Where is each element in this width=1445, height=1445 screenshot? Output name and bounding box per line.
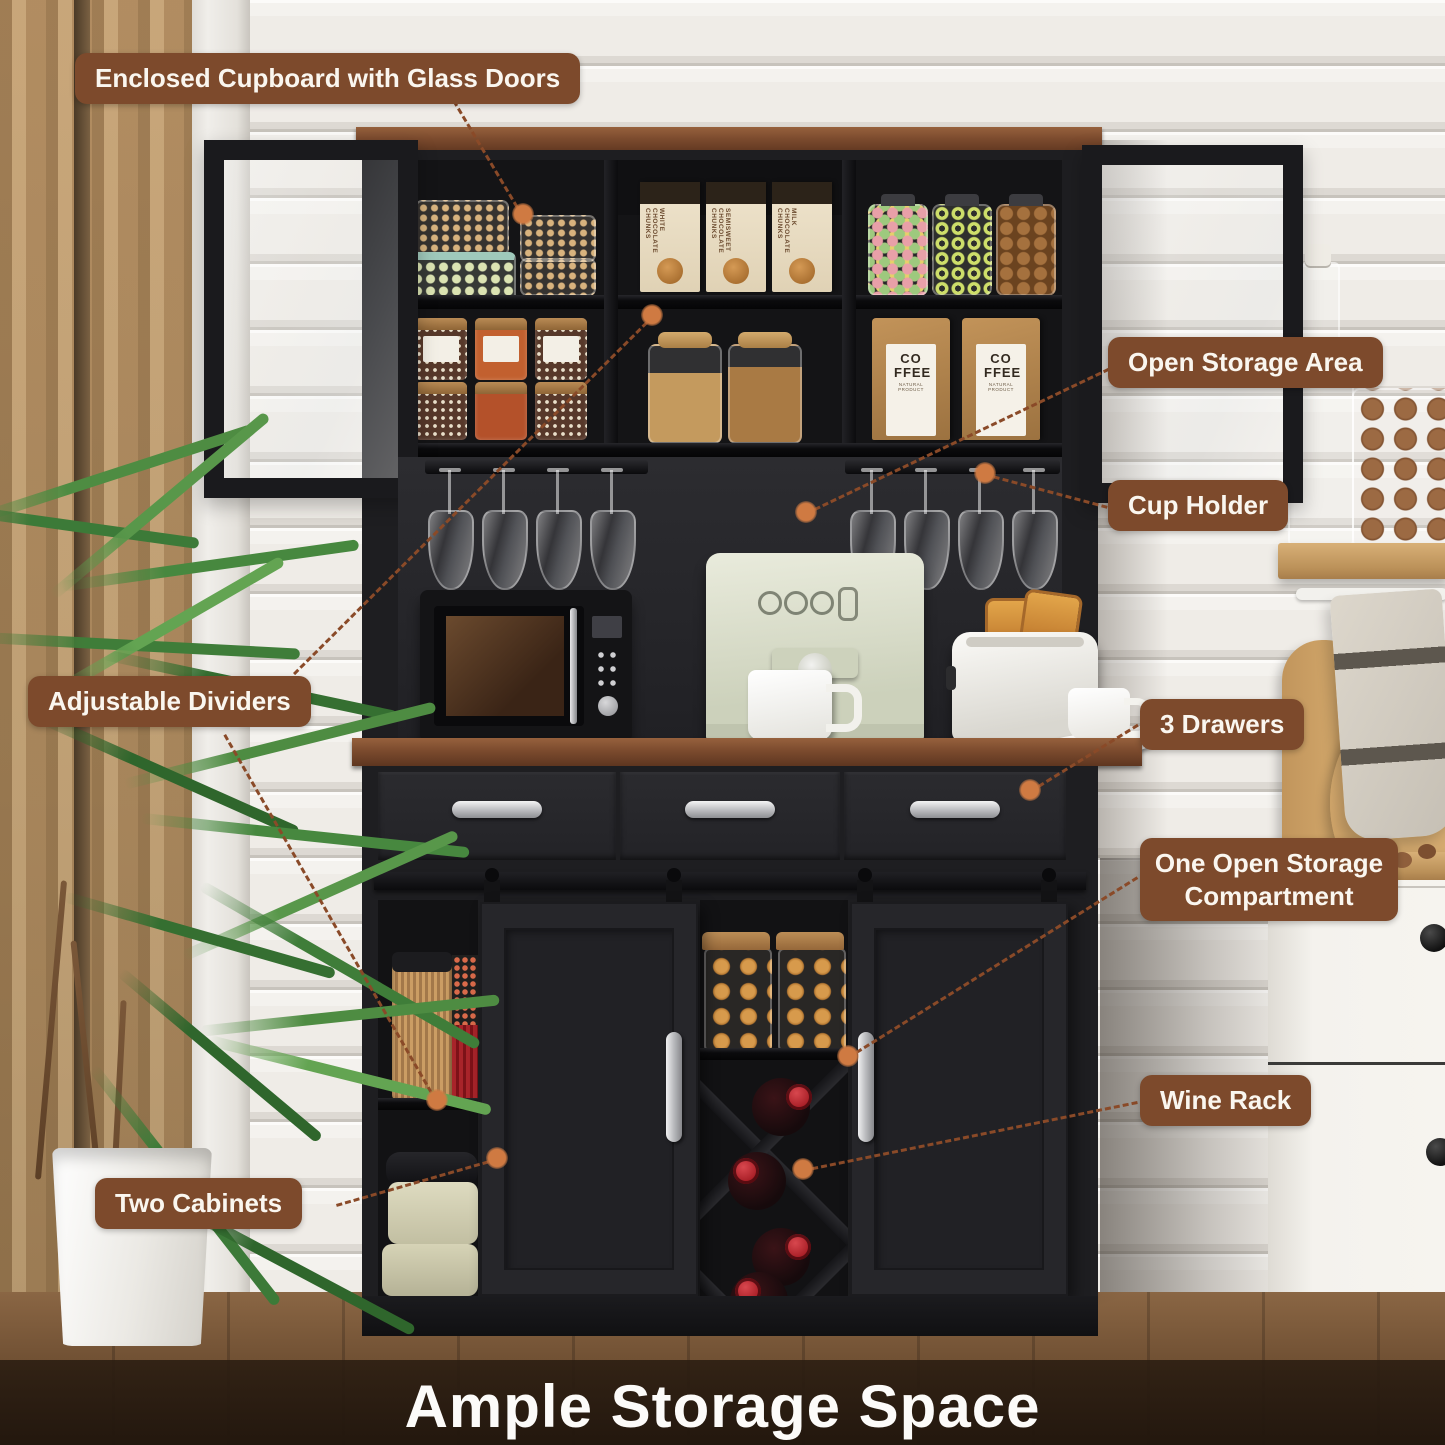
microwave-window xyxy=(446,616,564,716)
product-infographic: WHITE CHOCOLATE CHUNKS SEMISWEET CHOCOLA… xyxy=(0,0,1445,1445)
wine-glass xyxy=(535,466,581,588)
connector-dot-3-drawers xyxy=(1019,779,1041,801)
chocolate-box: MILK CHOCOLATE CHUNKS xyxy=(772,182,832,292)
callout-two-cabinets: Two Cabinets xyxy=(95,1178,302,1229)
spice-jar xyxy=(415,382,467,440)
snack-jar xyxy=(932,204,992,296)
sliding-barn-door-right xyxy=(850,902,1068,1296)
candy-jar xyxy=(868,204,928,296)
coffee-dial xyxy=(838,587,858,621)
connector-dot-cup-holder xyxy=(974,462,996,484)
cookie-jar xyxy=(704,948,772,1052)
connector-dot-adjustable-dividers xyxy=(641,304,663,326)
wine-glass xyxy=(427,466,473,588)
coffee-mug xyxy=(748,670,832,740)
coffee-bag: CO FFEENATURAL PRODUCT xyxy=(872,318,950,440)
wine-bottle-cap xyxy=(786,1084,812,1110)
glass-door-left xyxy=(204,140,418,498)
toaster-lever xyxy=(946,666,956,690)
callout-wine-rack: Wine Rack xyxy=(1140,1075,1311,1126)
microwave-display xyxy=(592,616,622,638)
banner-title: Ample Storage Space xyxy=(0,1372,1445,1441)
wine-bottle-cap xyxy=(785,1234,811,1260)
cookie-jar-lid xyxy=(702,932,770,950)
barn-door-rail xyxy=(374,872,1086,890)
cookie-jar-lid xyxy=(776,932,844,950)
countertop xyxy=(352,738,1142,766)
microwave xyxy=(420,590,632,742)
shelf-board xyxy=(700,1048,848,1060)
corked-jar xyxy=(648,344,722,444)
cupboard-bottom-shelf xyxy=(398,443,1062,457)
rice-cooker xyxy=(388,1182,478,1244)
connector-dot-two-cabinets xyxy=(486,1147,508,1169)
food-container xyxy=(415,200,509,256)
drawer-handle xyxy=(452,801,542,818)
spice-jar xyxy=(475,318,527,380)
cookie-jar xyxy=(778,948,846,1052)
candy-box xyxy=(452,955,478,1025)
callout-enclosed-cupboard: Enclosed Cupboard with Glass Doors xyxy=(75,53,580,104)
drawer-handle xyxy=(910,801,1000,818)
coffee-dial xyxy=(758,591,782,615)
connector-dot-open-compartment xyxy=(837,1045,859,1067)
cabinet-base xyxy=(362,1296,1098,1336)
nut-jar xyxy=(996,204,1056,296)
cupboard-divider xyxy=(842,160,856,457)
door-handle xyxy=(666,1032,682,1142)
snack-box xyxy=(452,1025,478,1100)
connector-dot-enclosed-cupboard xyxy=(512,203,534,225)
wine-bottle-cap xyxy=(733,1158,759,1184)
cupboard-divider xyxy=(604,160,618,457)
glass-door-right xyxy=(1082,145,1303,503)
chocolate-box: WHITE CHOCOLATE CHUNKS xyxy=(640,182,700,292)
teacup xyxy=(1068,688,1130,740)
callout-adjustable-dividers: Adjustable Dividers xyxy=(28,676,311,727)
jar-lid xyxy=(392,952,452,972)
connector-dot-wine-rack xyxy=(792,1158,814,1180)
cooking-pot xyxy=(382,1244,478,1296)
toaster-slots xyxy=(966,637,1084,647)
wine-glass xyxy=(481,466,527,588)
spice-jar xyxy=(475,382,527,440)
connector-dot-adjustable-dividers-lower xyxy=(426,1089,448,1111)
drawer-handle xyxy=(685,801,775,818)
food-container xyxy=(520,215,596,262)
wine-glass xyxy=(589,466,635,588)
open-compartment xyxy=(700,900,848,1296)
spice-jar xyxy=(415,318,467,380)
coffee-dial xyxy=(784,591,808,615)
callout-cup-holder: Cup Holder xyxy=(1108,480,1288,531)
callout-3-drawers: 3 Drawers xyxy=(1140,699,1304,750)
chocolate-box: SEMISWEET CHOCOLATE CHUNKS xyxy=(706,182,766,292)
spice-jar xyxy=(535,318,587,380)
microwave-buttons xyxy=(592,646,622,690)
callout-open-storage-area: Open Storage Area xyxy=(1108,337,1383,388)
callout-open-compartment: One Open Storage Compartment xyxy=(1140,838,1398,921)
microwave-knob xyxy=(598,696,618,716)
microwave-handle xyxy=(570,608,577,724)
coffee-dial xyxy=(810,591,834,615)
cupboard-shelf xyxy=(398,295,1062,309)
connector-dot-open-storage xyxy=(795,501,817,523)
corked-jar xyxy=(728,344,802,444)
food-container xyxy=(520,258,596,296)
coffee-mug-handle xyxy=(826,684,862,732)
wine-glass xyxy=(957,466,1003,588)
